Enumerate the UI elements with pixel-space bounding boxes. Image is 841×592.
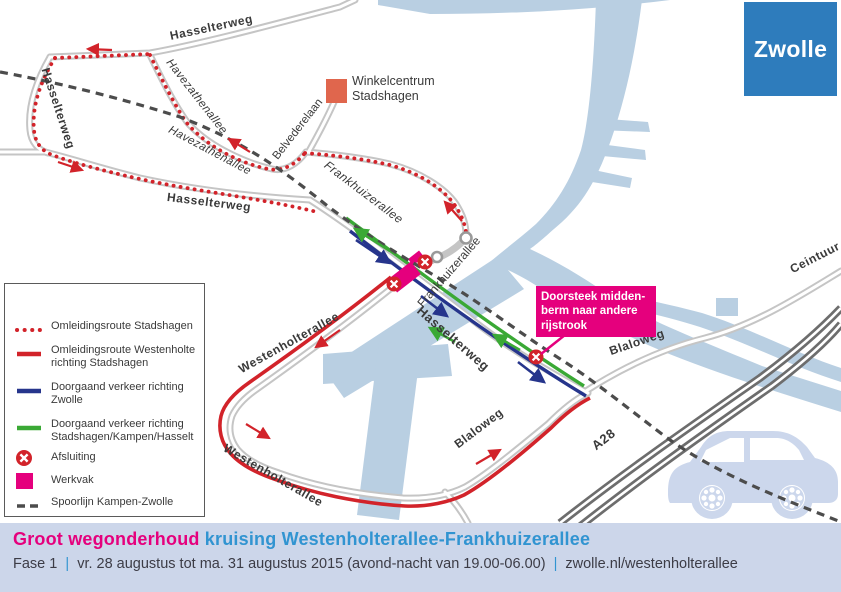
- footer-title-blue: kruising Westenholterallee-Frankhuizeral…: [205, 529, 590, 549]
- dashed-gray-line-icon: [15, 496, 51, 515]
- closure-icon: [529, 350, 544, 365]
- footer-separator: |: [61, 556, 73, 572]
- footer-phase: Fase 1: [13, 556, 57, 572]
- closure-icon: [387, 277, 402, 292]
- legend-item-omleiding-stadshagen: Omleidingsroute Stadshagen: [15, 320, 193, 339]
- footer-date: vr. 28 augustus tot ma. 31 augustus 2015…: [77, 556, 545, 572]
- footer-site-link[interactable]: zwolle.nl/westenholterallee: [565, 556, 738, 572]
- legend-item-omleiding-westenholte: Omleidingsroute Westenholterichting Stad…: [15, 344, 195, 370]
- dotted-red-line-icon: [15, 320, 51, 339]
- winkelcentrum-label: Winkelcentrum Stadshagen: [352, 74, 435, 104]
- doorsteek-callout: Doorsteek midden- berm naar andere rijst…: [536, 286, 656, 337]
- closure-icon: [15, 448, 51, 472]
- footer-title: Groot wegonderhoud kruising Westenholter…: [13, 529, 590, 550]
- solid-blue-line-icon: [15, 381, 51, 400]
- zwolle-logo: Zwolle: [744, 2, 837, 96]
- map-legend: Omleidingsroute Stadshagen Omleidingsrou…: [4, 283, 205, 517]
- footer-subtitle: Fase 1 | vr. 28 augustus tot ma. 31 augu…: [13, 556, 738, 572]
- solid-red-line-icon: [15, 344, 51, 363]
- zwolle-logo-text: Zwolle: [754, 36, 827, 63]
- legend-item-werkvak: Werkvak: [15, 471, 94, 495]
- winkelcentrum-marker: [326, 79, 347, 103]
- footer-separator: |: [550, 556, 562, 572]
- legend-item-doorgaand-stadshagen: Doorgaand verkeer richtingStadshagen/Kam…: [15, 418, 193, 444]
- legend-item-afsluiting: Afsluiting: [15, 448, 96, 472]
- legend-item-spoorlijn: Spoorlijn Kampen-Zwolle: [15, 496, 173, 515]
- werkvak-square-icon: [15, 471, 51, 495]
- solid-green-line-icon: [15, 418, 51, 437]
- footer-title-pink: Groot wegonderhoud: [13, 529, 200, 549]
- map-page: Hasselterweg Hasselterweg Havezathenalle…: [0, 0, 841, 592]
- legend-item-doorgaand-zwolle: Doorgaand verkeer richtingZwolle: [15, 381, 184, 407]
- footer-bar: Groot wegonderhoud kruising Westenholter…: [0, 523, 841, 592]
- closure-icon: [418, 255, 433, 270]
